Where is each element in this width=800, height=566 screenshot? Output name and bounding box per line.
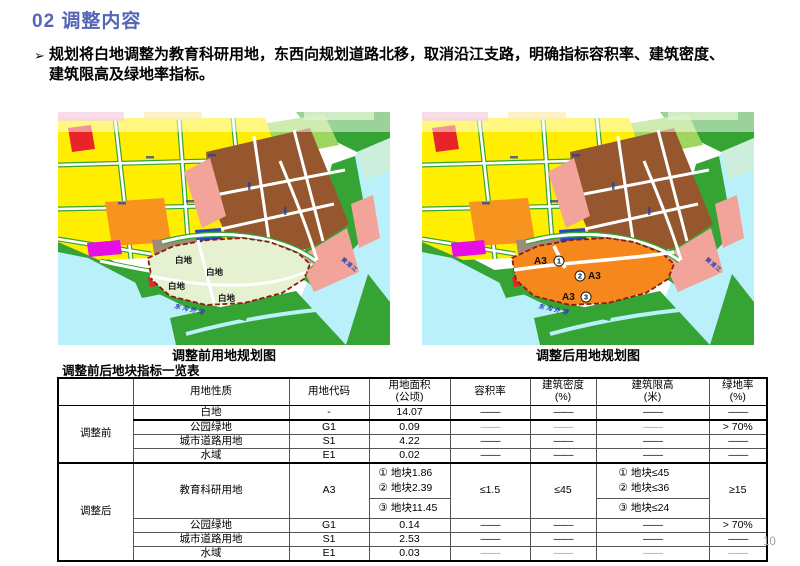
section-before: 调整前 [58, 406, 133, 464]
baidi-label-2: 白地 [206, 267, 224, 277]
map-before-svg: 白地 白地 白地 白地 黄浦江 东沟外港 [58, 112, 390, 345]
header-height: 建筑限高(米) [596, 378, 709, 406]
svg-text:3: 3 [584, 293, 588, 302]
baidi-label-3: 白地 [168, 281, 186, 291]
caption-after: 调整后用地规划图 [422, 345, 754, 364]
table-header-row: 用地性质 用地代码 用地面积(公顷) 容积率 建筑密度(%) 建筑限高(米) 绿… [58, 378, 767, 406]
table-row: 城市道路用地 S1 4.22 —— —— —— —— [58, 435, 767, 449]
page-title: 02 调整内容 [32, 6, 141, 33]
header-far: 容积率 [450, 378, 530, 406]
slide: 02 调整内容 ➢ 规划将白地调整为教育科研用地，东西向规划道路北移，取消沿江支… [0, 0, 800, 566]
map-after-svg: A3 1 2 A3 A3 3 黄浦江 东沟外港 [422, 112, 754, 345]
edu-area-cell: ① 地块1.86 ② 地块2.39 ③ 地块11.45 [369, 463, 450, 519]
a3-label-2: 2 A3 [575, 271, 601, 282]
bullet-arrow-icon: ➢ [34, 48, 45, 64]
table-row: 城市道路用地 S1 2.53 —— —— —— —— [58, 533, 767, 547]
svg-text:A3: A3 [534, 256, 547, 267]
header-nature: 用地性质 [133, 378, 289, 406]
table-row-edu: 调整后 教育科研用地 A3 ① 地块1.86 ② 地块2.39 ③ 地块11.4… [58, 463, 767, 519]
bullet-line-2: 建筑限高及绿地率指标。 [49, 65, 789, 85]
table-row: 水域 E1 0.02 —— —— —— —— [58, 449, 767, 464]
table-row: 调整前 白地 - 14.07 —— —— —— —— [58, 406, 767, 421]
header-density: 建筑密度(%) [530, 378, 596, 406]
baidi-label-1: 白地 [175, 255, 193, 265]
map-before: 白地 白地 白地 白地 黄浦江 东沟外港 [58, 112, 390, 345]
section-after: 调整后 [58, 463, 133, 561]
bullet-text: 规划将白地调整为教育科研用地，东西向规划道路北移，取消沿江支路，明确指标容积率、… [49, 45, 789, 85]
table-row: 水域 E1 0.03 —— —— —— —— [58, 547, 767, 562]
header-blank [58, 378, 133, 406]
svg-text:A3: A3 [562, 292, 575, 303]
table-row: 公园绿地 G1 0.14 —— —— —— > 70% [58, 519, 767, 533]
svg-text:A3: A3 [588, 271, 601, 282]
edu-height-cell: ① 地块≤45 ② 地块≤36 ③ 地块≤24 [596, 463, 709, 519]
header-area: 用地面积(公顷) [369, 378, 450, 406]
header-code: 用地代码 [289, 378, 369, 406]
svg-text:2: 2 [578, 272, 582, 281]
indicator-table: 用地性质 用地代码 用地面积(公顷) 容积率 建筑密度(%) 建筑限高(米) 绿… [57, 377, 768, 562]
bullet-line-1: 规划将白地调整为教育科研用地，东西向规划道路北移，取消沿江支路，明确指标容积率、… [49, 45, 789, 65]
table-row: 公园绿地 G1 0.09 —— —— —— > 70% [58, 420, 767, 435]
page-number: 10 [763, 536, 776, 548]
baidi-label-4: 白地 [218, 293, 236, 303]
header-green: 绿地率(%) [709, 378, 767, 406]
svg-text:1: 1 [557, 257, 561, 266]
map-after: A3 1 2 A3 A3 3 黄浦江 东沟外港 [422, 112, 754, 345]
